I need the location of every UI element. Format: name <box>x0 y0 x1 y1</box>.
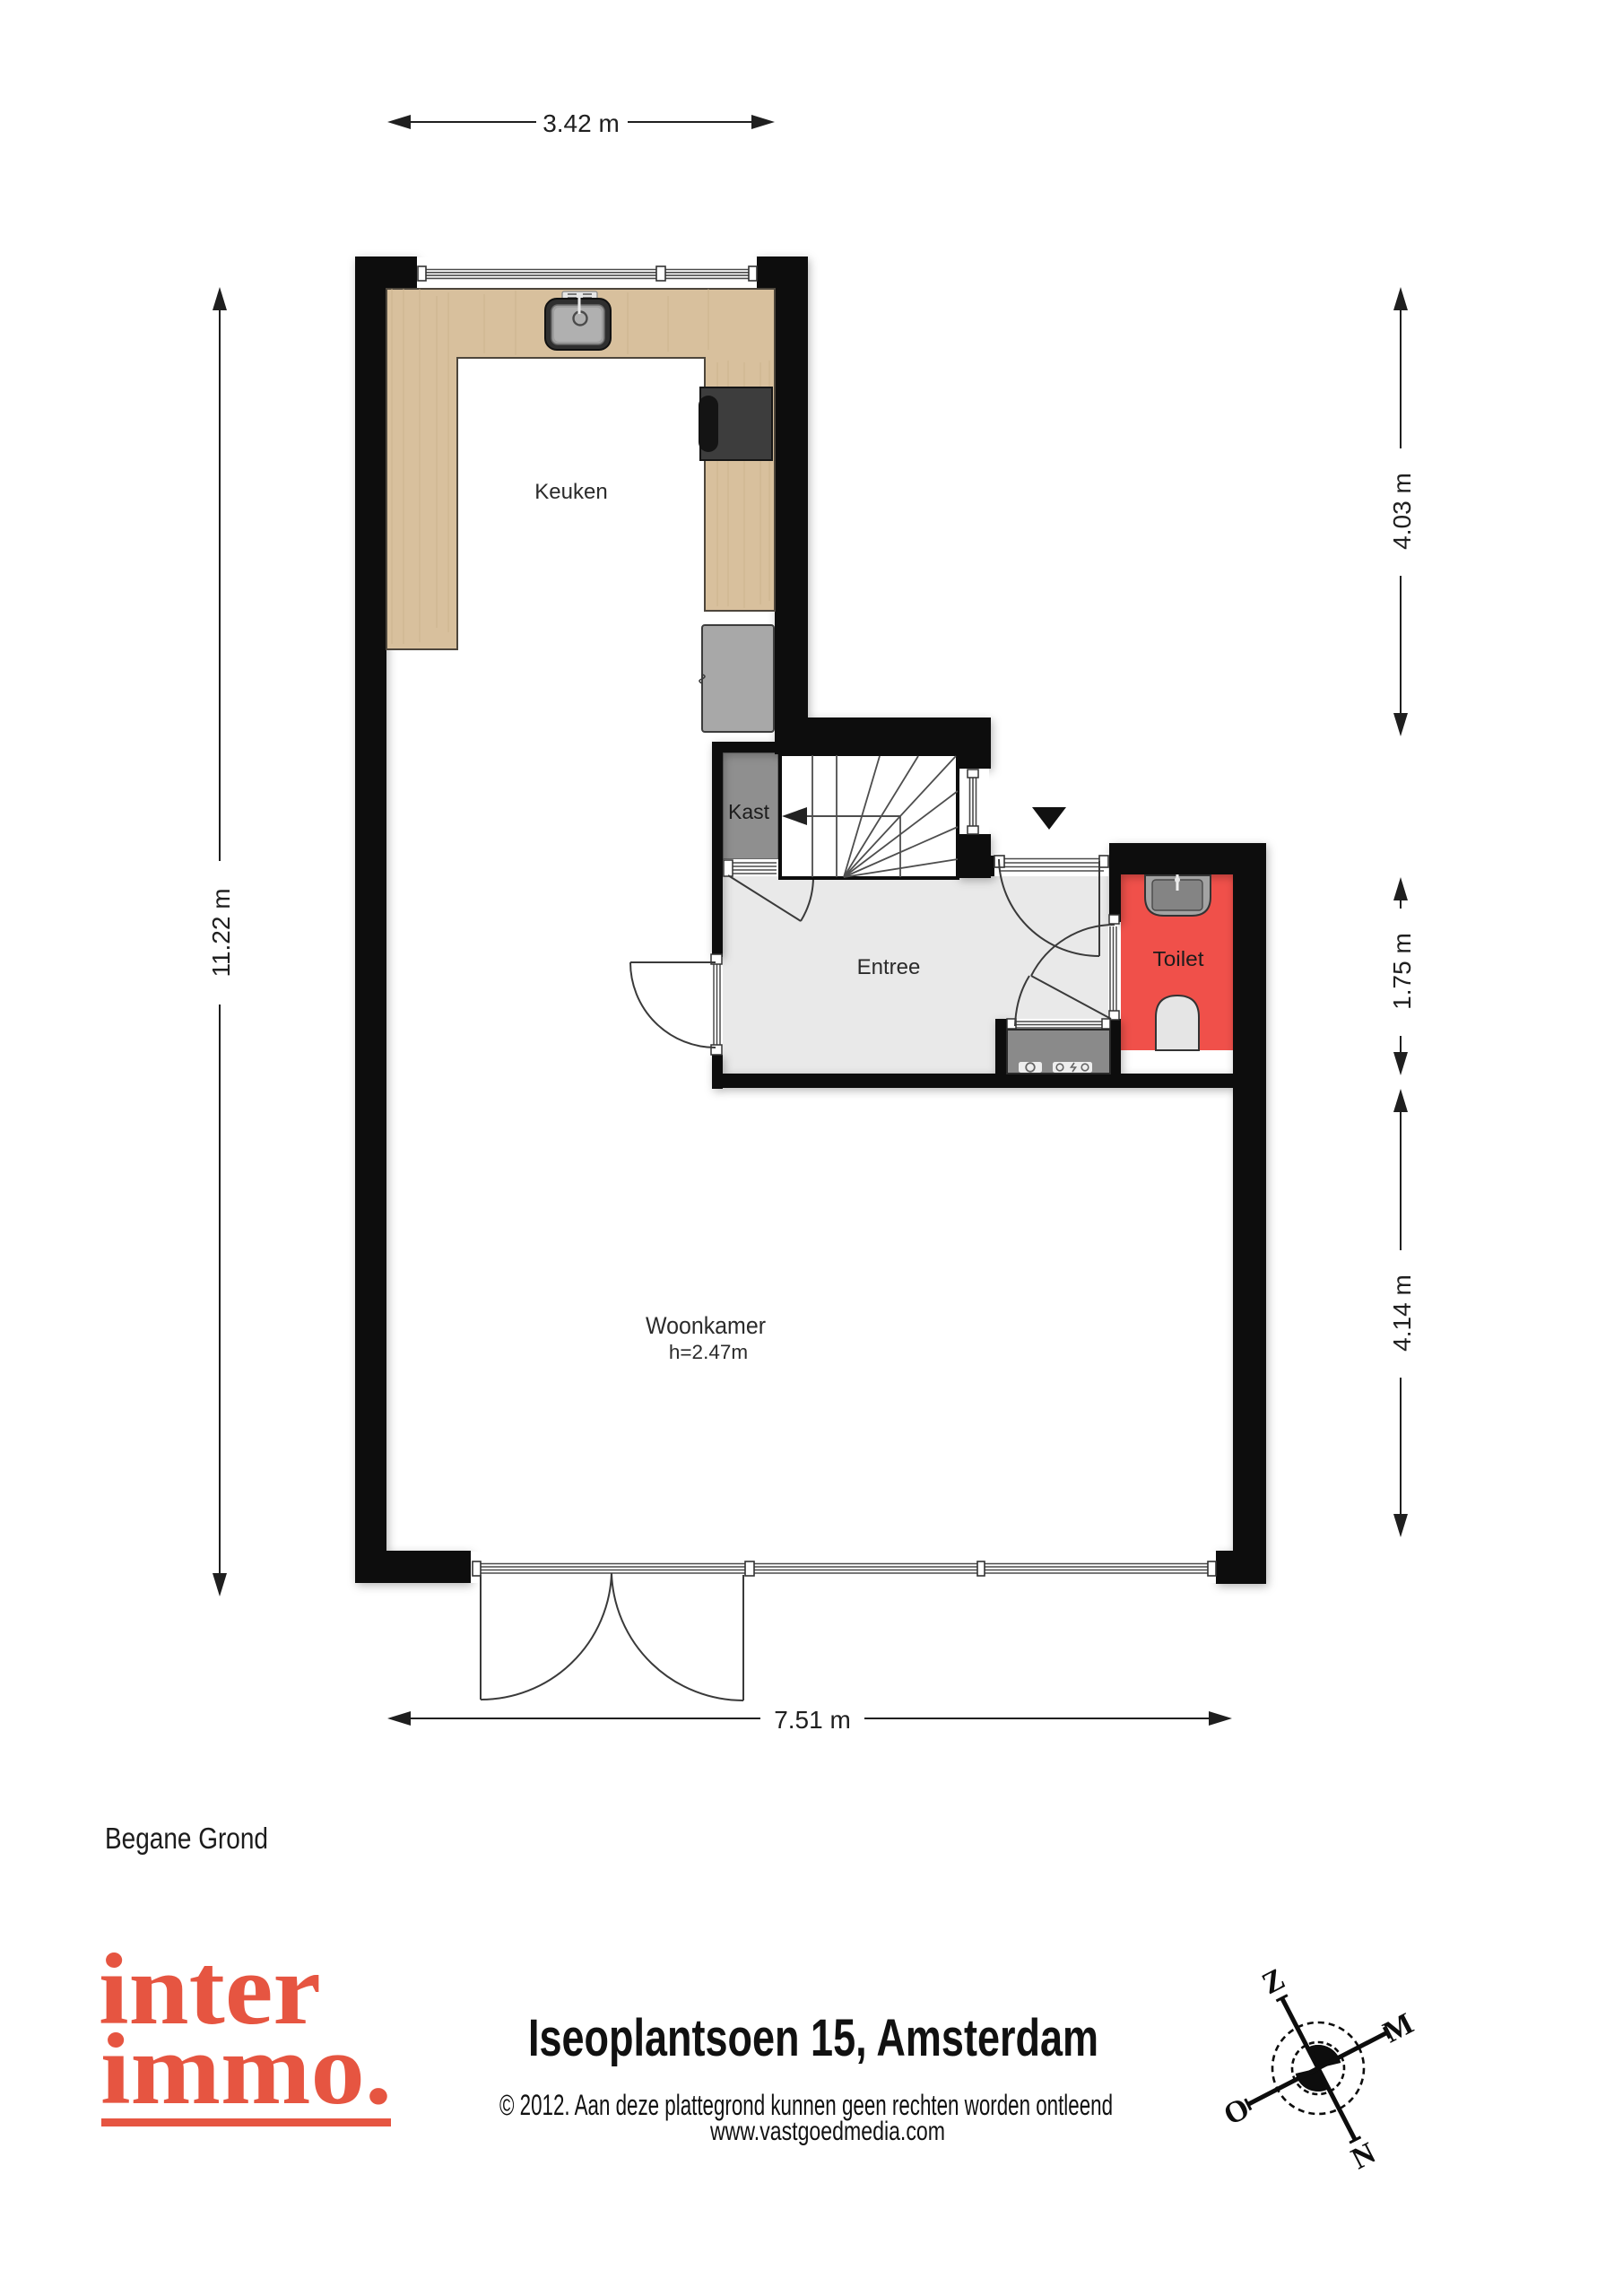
svg-text:4.14 m: 4.14 m <box>1388 1274 1416 1352</box>
svg-text:4.03 m: 4.03 m <box>1388 473 1416 550</box>
svg-text:immo.: immo. <box>100 2013 392 2126</box>
svg-text:Begane Grond: Begane Grond <box>105 1822 268 1855</box>
svg-text:M: M <box>1378 2007 1419 2050</box>
svg-text:O: O <box>1219 2092 1254 2132</box>
svg-text:h=2.47m: h=2.47m <box>669 1341 748 1363</box>
svg-text:Keuken: Keuken <box>534 480 607 504</box>
svg-text:1.75 m: 1.75 m <box>1388 933 1416 1010</box>
svg-text:Iseoplantsoen 15, Amsterdam: Iseoplantsoen 15, Amsterdam <box>528 2009 1098 2067</box>
svg-text:Kast: Kast <box>728 800 770 823</box>
svg-text:Toilet: Toilet <box>1153 947 1205 970</box>
svg-text:Entree: Entree <box>857 955 921 979</box>
svg-text:www.vastgoedmedia.com: www.vastgoedmedia.com <box>709 2117 945 2146</box>
svg-text:Woonkamer: Woonkamer <box>646 1312 766 1339</box>
svg-text:11.22 m: 11.22 m <box>207 888 235 977</box>
svg-text:3.42 m: 3.42 m <box>542 109 620 137</box>
svg-text:7.51 m: 7.51 m <box>774 1706 851 1734</box>
